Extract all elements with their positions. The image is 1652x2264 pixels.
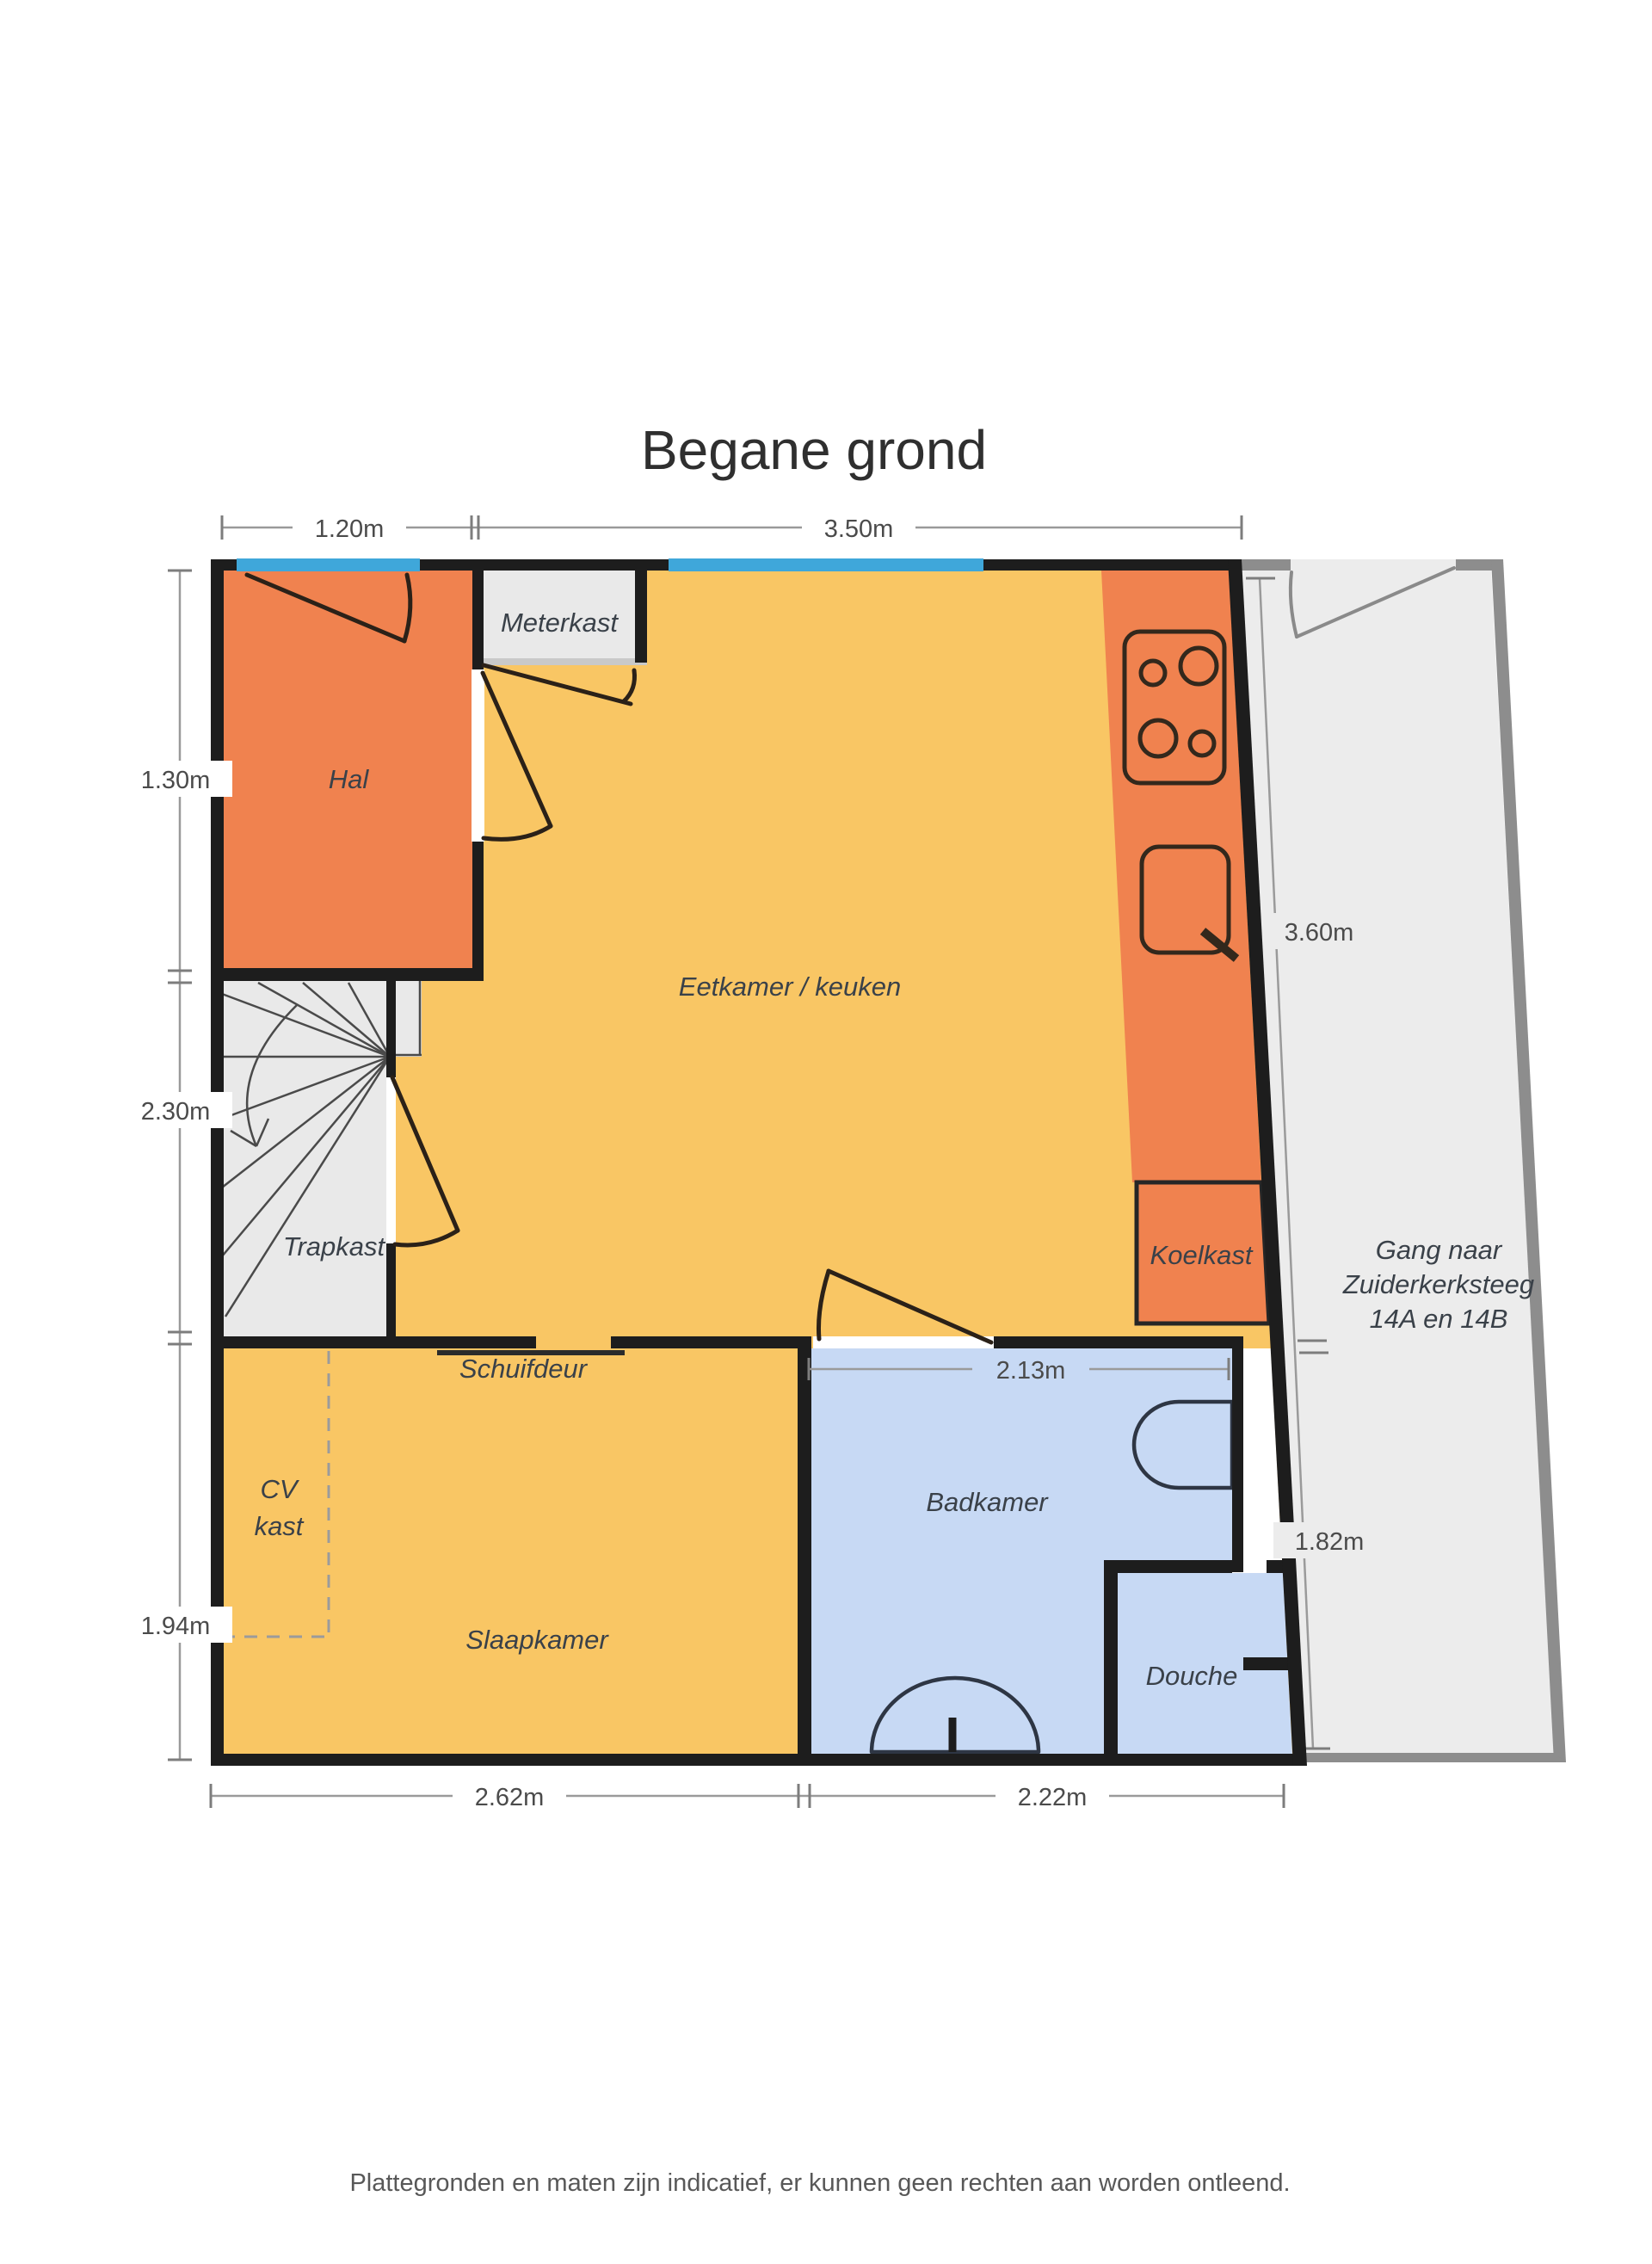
douche-wall-left <box>1104 1560 1118 1754</box>
room-label-trapkast: Trapkast <box>283 1231 386 1262</box>
room-label-hal: Hal <box>329 764 370 794</box>
wall-trapkast-right-lower <box>386 1243 396 1348</box>
wall-badkamer-top <box>994 1336 1243 1348</box>
douche-screen-stub-wall <box>1243 1657 1290 1670</box>
wall-slaapkamer-top <box>222 1336 536 1348</box>
wall-outer-left <box>211 559 224 1766</box>
wall-hal-bottom <box>211 968 484 981</box>
hal-door-opening <box>472 669 484 842</box>
room-label-douche: Douche <box>1146 1661 1238 1691</box>
trapkast-door-opening <box>386 1077 396 1243</box>
room-label-eetkamer: Eetkamer / keuken <box>679 972 901 1002</box>
room-label-cv-line2: kast <box>255 1511 305 1541</box>
dim-left-upper: 1.30m <box>141 767 211 794</box>
corridor-wall-bottom <box>1293 1753 1566 1762</box>
room-label-meterkast: Meterkast <box>501 608 619 638</box>
wall-hal-right-lower <box>472 842 484 968</box>
window-front-door <box>237 558 420 571</box>
wall-badkamer-left <box>798 1336 811 1754</box>
page-title: Begane grond <box>641 419 987 481</box>
room-douche <box>1104 1560 1292 1754</box>
room-label-slaapkamer: Slaapkamer <box>465 1625 609 1655</box>
dim-top-right: 3.50m <box>824 515 894 543</box>
dim-bottom-left: 2.62m <box>475 1784 545 1811</box>
footer-disclaimer: Plattegronden en maten zijn indicatief, … <box>349 2169 1290 2197</box>
dim-right-lower: 1.82m <box>1295 1528 1365 1556</box>
badkamer-door-opening <box>813 1336 994 1348</box>
floorplan-canvas: Begane grond <box>0 0 1652 2264</box>
toilet-icon <box>1134 1402 1232 1488</box>
wall-badkamer-right <box>1232 1336 1243 1572</box>
wall-slaapkamer-top-right <box>611 1336 811 1348</box>
room-label-koelkast: Koelkast <box>1150 1240 1254 1270</box>
room-label-schuifdeur: Schuifdeur <box>459 1354 589 1384</box>
room-label-badkamer: Badkamer <box>926 1487 1049 1517</box>
window-kitchen <box>669 558 983 571</box>
meterkast-open-side <box>472 658 647 665</box>
dim-top-left: 1.20m <box>315 515 385 543</box>
corridor-door-opening <box>1291 559 1456 571</box>
meterkast-wall-right <box>635 571 647 663</box>
dim-badkamer-width: 2.13m <box>996 1357 1066 1385</box>
dim-right-upper: 3.60m <box>1285 919 1354 947</box>
wall-hal-right-upper <box>472 571 484 669</box>
dim-bottom-right: 2.22m <box>1018 1784 1088 1811</box>
room-label-gang-line3: 14A en 14B <box>1370 1304 1508 1334</box>
wall-outer-bottom <box>211 1754 1299 1766</box>
wall-trapkast-right-upper <box>386 981 396 1077</box>
dim-left-middle: 2.30m <box>141 1098 211 1126</box>
floorplan-page: Begane grond <box>0 0 1652 2264</box>
dim-left-lower: 1.94m <box>141 1613 211 1640</box>
room-label-cv-line1: CV <box>260 1474 299 1504</box>
room-label-gang-line2: Zuiderkerksteeg <box>1342 1269 1534 1299</box>
room-label-gang-line1: Gang naar <box>1376 1235 1503 1265</box>
